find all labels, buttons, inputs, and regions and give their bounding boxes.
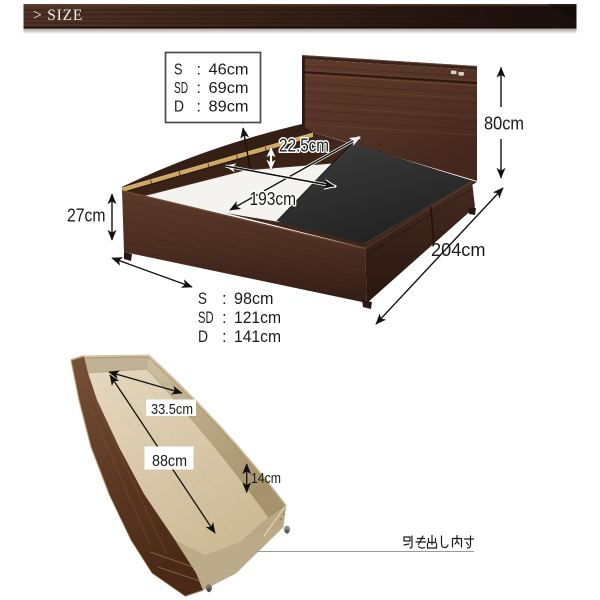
svg-text:121cm: 121cm	[234, 308, 281, 327]
svg-text:SD: SD	[198, 308, 214, 327]
svg-text:204cm: 204cm	[431, 240, 486, 260]
svg-text:193cm: 193cm	[250, 189, 297, 209]
svg-text::: :	[197, 99, 201, 116]
svg-text:S: S	[198, 289, 207, 308]
svg-text:46cm: 46cm	[209, 62, 249, 79]
svg-text::: :	[222, 308, 227, 327]
svg-text:27cm: 27cm	[67, 206, 106, 226]
svg-text::: :	[197, 80, 201, 97]
svg-text:80cm: 80cm	[484, 114, 524, 134]
svg-text:69cm: 69cm	[209, 80, 249, 97]
svg-text:D: D	[198, 327, 208, 346]
svg-text:89cm: 89cm	[209, 99, 249, 116]
svg-text:S: S	[174, 62, 183, 79]
svg-text::: :	[222, 327, 227, 346]
svg-text:88cm: 88cm	[152, 453, 187, 470]
svg-text::: :	[197, 62, 201, 79]
svg-text::: :	[222, 289, 227, 308]
svg-text:D: D	[174, 99, 184, 116]
svg-text:SD: SD	[174, 80, 188, 97]
svg-text:33.5cm: 33.5cm	[151, 401, 193, 418]
svg-text:98cm: 98cm	[234, 289, 274, 308]
svg-text:> SIZE: > SIZE	[33, 7, 83, 24]
svg-text:14cm: 14cm	[251, 471, 281, 487]
svg-text:22.5cm: 22.5cm	[279, 136, 329, 156]
svg-text:141cm: 141cm	[234, 327, 281, 346]
